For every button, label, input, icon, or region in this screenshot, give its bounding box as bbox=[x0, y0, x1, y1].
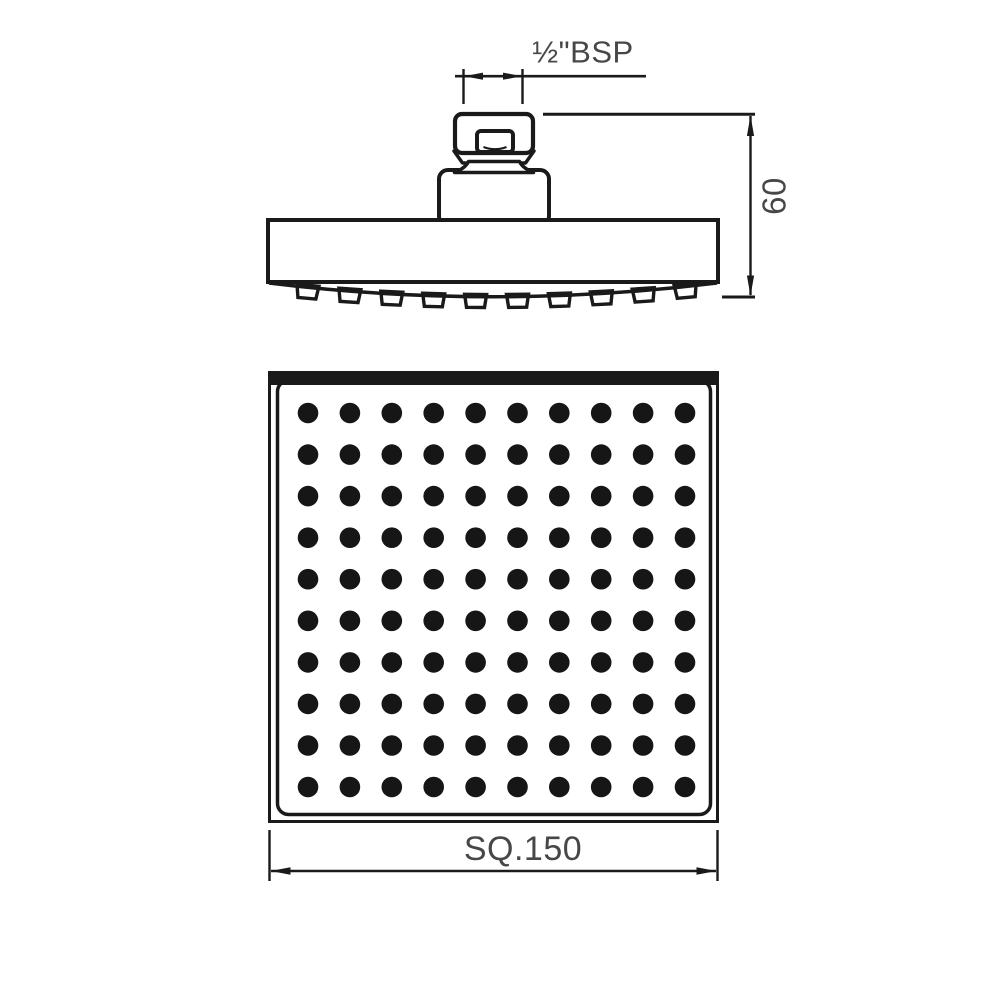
flow-dot bbox=[675, 444, 696, 465]
flow-dot bbox=[633, 611, 654, 632]
flow-dot bbox=[382, 527, 403, 548]
flow-dot bbox=[382, 569, 403, 590]
flow-dot bbox=[382, 652, 403, 673]
width-dimension-label: SQ.150 bbox=[464, 832, 582, 866]
coupling-bell bbox=[455, 162, 534, 173]
flow-dot bbox=[549, 444, 570, 465]
flow-dot bbox=[591, 694, 612, 715]
flow-dot bbox=[633, 694, 654, 715]
flow-dot bbox=[465, 444, 486, 465]
flow-dot bbox=[423, 611, 444, 632]
flow-dot bbox=[298, 611, 319, 632]
flow-dot bbox=[675, 652, 696, 673]
flow-dot bbox=[591, 777, 612, 798]
flow-dot bbox=[465, 486, 486, 507]
flow-dot bbox=[298, 527, 319, 548]
flow-dot bbox=[298, 403, 319, 424]
flow-dot bbox=[340, 403, 361, 424]
flow-dot bbox=[507, 527, 528, 548]
flow-dot bbox=[675, 777, 696, 798]
flow-dot bbox=[340, 652, 361, 673]
flow-dot bbox=[591, 444, 612, 465]
flow-dot bbox=[423, 777, 444, 798]
flow-dot bbox=[298, 735, 319, 756]
flow-dot bbox=[340, 777, 361, 798]
flow-dot bbox=[675, 735, 696, 756]
face-outer-square bbox=[270, 373, 718, 822]
flow-dot bbox=[549, 486, 570, 507]
flow-dot bbox=[549, 694, 570, 715]
flow-dot bbox=[507, 611, 528, 632]
flow-dot bbox=[382, 403, 403, 424]
thread-arrow-left bbox=[464, 73, 483, 80]
flow-dot bbox=[507, 735, 528, 756]
bottom-view bbox=[270, 373, 718, 882]
flow-dot bbox=[507, 486, 528, 507]
flow-dot bbox=[340, 735, 361, 756]
flow-dot bbox=[675, 569, 696, 590]
flow-dot bbox=[633, 777, 654, 798]
flow-dot bbox=[507, 694, 528, 715]
flow-dot bbox=[465, 403, 486, 424]
height-arrow-bottom bbox=[747, 276, 754, 297]
flow-dot bbox=[298, 652, 319, 673]
flow-dot bbox=[465, 527, 486, 548]
flow-dot bbox=[298, 694, 319, 715]
flow-dot bbox=[633, 735, 654, 756]
flow-dot bbox=[340, 486, 361, 507]
flow-dot bbox=[633, 403, 654, 424]
flow-dot bbox=[298, 777, 319, 798]
width-arrow-right bbox=[697, 867, 717, 874]
flow-dot bbox=[382, 611, 403, 632]
flow-dot bbox=[507, 403, 528, 424]
height-dimension-label: 60 bbox=[758, 177, 791, 215]
thread-arrow-right bbox=[503, 73, 522, 80]
height-arrow-top bbox=[747, 116, 754, 137]
flow-dot bbox=[382, 444, 403, 465]
nozzle-dot-grid bbox=[298, 403, 696, 798]
flow-dot bbox=[507, 569, 528, 590]
flow-dot bbox=[675, 694, 696, 715]
width-arrow-left bbox=[271, 867, 291, 874]
flow-dot bbox=[423, 652, 444, 673]
flow-dot bbox=[633, 527, 654, 548]
stem-block bbox=[439, 170, 549, 225]
flow-dot bbox=[591, 569, 612, 590]
flow-dot bbox=[633, 444, 654, 465]
flow-dot bbox=[465, 694, 486, 715]
flow-dot bbox=[507, 777, 528, 798]
flow-dot bbox=[675, 403, 696, 424]
flow-dot bbox=[382, 486, 403, 507]
flow-dot bbox=[465, 652, 486, 673]
flow-dot bbox=[549, 569, 570, 590]
flow-dot bbox=[340, 611, 361, 632]
flow-dot bbox=[465, 611, 486, 632]
flow-dot bbox=[549, 527, 570, 548]
side-view bbox=[268, 69, 755, 308]
flow-dot bbox=[549, 652, 570, 673]
flow-dot bbox=[591, 527, 612, 548]
flow-dot bbox=[591, 486, 612, 507]
flow-dot bbox=[465, 735, 486, 756]
flow-dot bbox=[633, 652, 654, 673]
flow-dot bbox=[507, 652, 528, 673]
flow-dot bbox=[549, 403, 570, 424]
flow-dot bbox=[633, 486, 654, 507]
flow-dot bbox=[591, 611, 612, 632]
flow-dot bbox=[298, 444, 319, 465]
flow-dot bbox=[340, 569, 361, 590]
flow-dot bbox=[423, 694, 444, 715]
flow-dot bbox=[507, 444, 528, 465]
flow-dot bbox=[423, 403, 444, 424]
flow-dot bbox=[382, 694, 403, 715]
flow-dot bbox=[340, 694, 361, 715]
flow-dot bbox=[591, 652, 612, 673]
flow-dot bbox=[675, 527, 696, 548]
technical-drawing-canvas: ½"BSP 60 SQ.150 bbox=[0, 0, 1000, 1000]
flow-dot bbox=[423, 486, 444, 507]
flow-dot bbox=[549, 735, 570, 756]
flow-dot bbox=[465, 569, 486, 590]
flow-dot bbox=[675, 611, 696, 632]
flow-dot bbox=[298, 486, 319, 507]
flow-dot bbox=[633, 569, 654, 590]
connector-assembly bbox=[268, 114, 718, 282]
flow-dot bbox=[591, 735, 612, 756]
head-body-outline bbox=[268, 220, 718, 282]
flow-dot bbox=[549, 611, 570, 632]
flow-dot bbox=[423, 569, 444, 590]
flow-dot bbox=[423, 444, 444, 465]
dimension-thread bbox=[455, 69, 646, 104]
flow-dot bbox=[423, 735, 444, 756]
flow-dot bbox=[465, 777, 486, 798]
flow-dot bbox=[382, 735, 403, 756]
flow-dot bbox=[340, 444, 361, 465]
thread-dimension-label: ½"BSP bbox=[532, 37, 633, 68]
flow-dot bbox=[591, 403, 612, 424]
flow-dot bbox=[340, 527, 361, 548]
flow-dot bbox=[298, 569, 319, 590]
flow-dot bbox=[423, 527, 444, 548]
flow-dot bbox=[382, 777, 403, 798]
flow-dot bbox=[549, 777, 570, 798]
flow-dot bbox=[675, 486, 696, 507]
